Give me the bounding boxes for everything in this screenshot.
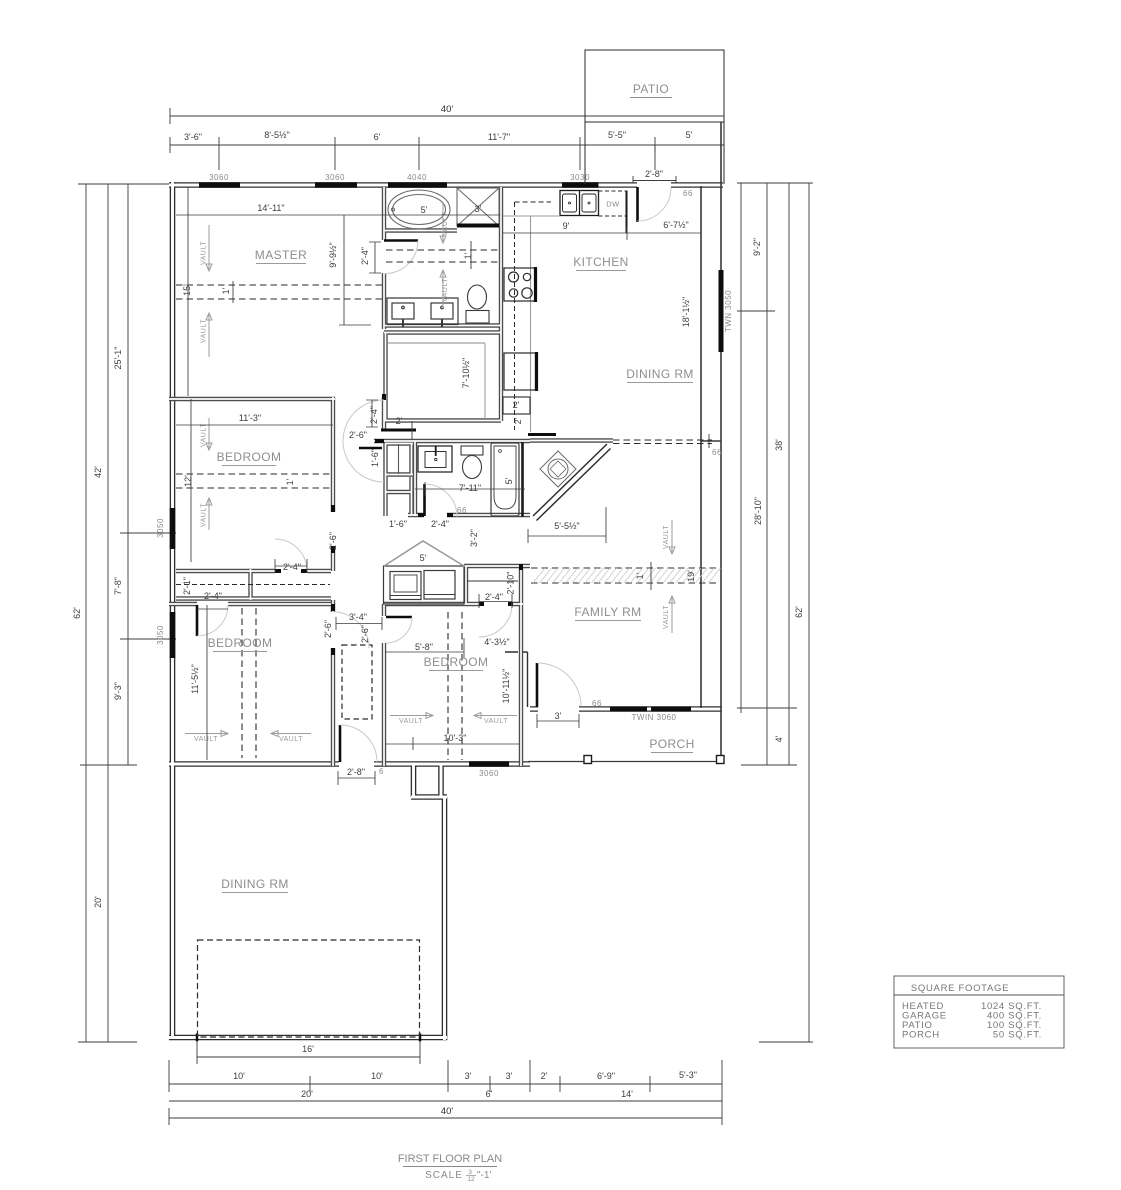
svg-text:3060: 3060: [209, 173, 229, 182]
svg-text:TWN 3050: TWN 3050: [724, 290, 733, 332]
svg-text:3': 3': [555, 711, 562, 721]
svg-text:VAULT: VAULT: [663, 605, 670, 629]
svg-text:1': 1': [463, 252, 473, 259]
svg-text:3': 3': [506, 1071, 513, 1081]
svg-text:2'-10": 2'-10": [506, 572, 516, 595]
svg-text:25'-1": 25'-1": [113, 347, 123, 370]
svg-text:9': 9': [563, 221, 570, 231]
svg-text:4': 4': [774, 735, 784, 742]
svg-text:5': 5': [420, 553, 427, 563]
svg-text:14': 14': [621, 1089, 633, 1099]
svg-text:5'-5": 5'-5": [608, 130, 626, 140]
svg-text:2'-6": 2'-6": [323, 620, 333, 638]
svg-text:VAULT: VAULT: [442, 278, 449, 302]
svg-text:11'-5½": 11'-5½": [190, 664, 200, 694]
svg-text:42': 42': [93, 466, 103, 478]
svg-text:1': 1': [285, 478, 295, 485]
svg-text:6'-7½": 6'-7½": [663, 220, 688, 230]
svg-text:16': 16': [302, 1044, 314, 1054]
svg-text:5': 5': [686, 130, 693, 140]
svg-text:18'-1½": 18'-1½": [681, 297, 691, 327]
svg-text:2'-4": 2'-4": [369, 406, 379, 424]
svg-text:BEDROOM: BEDROOM: [217, 450, 282, 464]
svg-text:6'-9": 6'-9": [597, 1071, 615, 1081]
svg-text:BEDROOM: BEDROOM: [424, 655, 489, 669]
svg-text:7'-11": 7'-11": [459, 483, 481, 493]
svg-text:2'-6": 2'-6": [349, 430, 367, 440]
svg-text:5'-5½": 5'-5½": [554, 521, 579, 531]
svg-text:62': 62': [72, 607, 82, 619]
svg-text:2': 2': [541, 1071, 548, 1081]
svg-text:4'-3½": 4'-3½": [484, 637, 509, 647]
svg-text:12: 12: [467, 1176, 475, 1183]
svg-text:9'-3": 9'-3": [113, 682, 123, 700]
svg-text:VAULT: VAULT: [201, 503, 208, 527]
svg-text:5'-8": 5'-8": [415, 642, 433, 652]
svg-text:62': 62': [794, 606, 804, 618]
svg-text:5'-3": 5'-3": [679, 1070, 697, 1080]
svg-text:VAULT: VAULT: [663, 525, 670, 549]
svg-text:6': 6': [374, 132, 381, 142]
svg-text:2'-6": 2'-6": [360, 625, 370, 643]
svg-text:KITCHEN: KITCHEN: [573, 255, 628, 269]
svg-text:66: 66: [712, 448, 722, 457]
svg-text:8'-5½": 8'-5½": [264, 130, 289, 140]
svg-text:7'-8": 7'-8": [113, 577, 123, 595]
svg-text:14'-11": 14'-11": [257, 203, 284, 213]
svg-text:15': 15': [182, 284, 192, 296]
svg-text:6: 6: [379, 767, 384, 776]
svg-text:VAULT: VAULT: [201, 423, 208, 447]
svg-text:3: 3: [468, 1169, 472, 1176]
svg-text:10': 10': [233, 1071, 245, 1081]
svg-text:2'-4": 2'-4": [431, 519, 449, 529]
svg-text:40': 40': [441, 104, 454, 115]
svg-text:MASTER: MASTER: [255, 248, 307, 262]
svg-text:20': 20': [301, 1089, 313, 1099]
svg-text:6': 6': [486, 1089, 493, 1099]
svg-text:VAULT: VAULT: [201, 241, 208, 265]
svg-text:1': 1': [221, 287, 231, 294]
svg-text:PORCH: PORCH: [649, 737, 694, 751]
svg-text:VAULT: VAULT: [201, 319, 208, 343]
svg-text:5': 5': [421, 205, 428, 215]
svg-text:DW: DW: [606, 200, 620, 209]
svg-text:3050: 3050: [156, 518, 165, 538]
svg-text:SCALE: SCALE: [425, 1170, 463, 1181]
svg-text:FAMILY RM: FAMILY RM: [574, 605, 641, 619]
svg-text:9'-9½": 9'-9½": [328, 242, 338, 267]
svg-text:FIRST FLOOR PLAN: FIRST FLOOR PLAN: [398, 1153, 502, 1165]
svg-text:PATIO: PATIO: [633, 82, 669, 96]
svg-text:BEDROOM: BEDROOM: [208, 636, 273, 650]
svg-text:2'-4": 2'-4": [360, 247, 370, 265]
svg-text:"-1': "-1': [477, 1170, 491, 1181]
svg-text:2': 2': [513, 400, 520, 410]
svg-text:38': 38': [774, 439, 784, 451]
svg-text:3060: 3060: [479, 769, 499, 778]
svg-text:66: 66: [683, 189, 693, 198]
svg-text:5': 5': [504, 477, 514, 484]
svg-text:4040: 4040: [407, 173, 427, 182]
svg-text:20': 20': [93, 896, 103, 908]
svg-text:3060: 3060: [325, 173, 345, 182]
svg-text:VAULT: VAULT: [279, 736, 303, 743]
svg-text:VAULT: VAULT: [194, 736, 218, 743]
svg-text:1'-6": 1'-6": [389, 519, 407, 529]
svg-text:3050: 3050: [156, 625, 165, 645]
svg-text:3'-4": 3'-4": [349, 612, 367, 622]
svg-text:3030: 3030: [570, 173, 590, 182]
svg-text:DINING RM: DINING RM: [221, 877, 289, 891]
svg-text:9'-2": 9'-2": [752, 238, 762, 256]
svg-text:2'-6": 2'-6": [328, 532, 338, 550]
svg-text:10'-3": 10'-3": [444, 733, 467, 743]
svg-text:1': 1': [635, 572, 645, 579]
svg-text:3'-6": 3'-6": [184, 132, 202, 142]
svg-text:2': 2': [513, 417, 523, 424]
svg-text:DINING RM: DINING RM: [626, 367, 694, 381]
svg-text:2'-4": 2'-4": [485, 592, 503, 602]
svg-text:2': 2': [396, 416, 403, 426]
svg-text:66: 66: [592, 699, 602, 708]
svg-text:10': 10': [371, 1071, 383, 1081]
svg-text:2'-8": 2'-8": [347, 767, 365, 777]
svg-text:3': 3': [465, 1071, 472, 1081]
svg-text:10'-11½": 10'-11½": [501, 669, 511, 704]
svg-text:28'-10": 28'-10": [753, 497, 763, 525]
svg-text:12': 12': [183, 475, 193, 487]
svg-text:50 SQ.FT.: 50 SQ.FT.: [993, 1030, 1042, 1041]
svg-text:11'-7": 11'-7": [488, 132, 510, 142]
svg-text:3': 3': [475, 204, 482, 214]
svg-text:2'-8": 2'-8": [645, 169, 663, 179]
svg-text:PORCH: PORCH: [902, 1030, 940, 1041]
svg-text:2'-1": 2'-1": [182, 577, 192, 595]
svg-text:11'-3": 11'-3": [239, 413, 261, 423]
svg-text:2'-4": 2'-4": [204, 591, 222, 601]
svg-text:19': 19': [686, 570, 696, 582]
svg-text:SQUARE FOOTAGE: SQUARE FOOTAGE: [911, 983, 1009, 994]
svg-text:2'-4": 2'-4": [283, 562, 301, 572]
svg-text:1'-6": 1'-6": [370, 449, 380, 467]
svg-text:VAULT: VAULT: [484, 718, 508, 725]
svg-text:40': 40': [441, 1106, 454, 1117]
svg-text:3'-2": 3'-2": [469, 529, 479, 547]
svg-text:7'-10½": 7'-10½": [461, 358, 471, 388]
svg-text:66: 66: [457, 506, 467, 515]
svg-text:TWIN 3060: TWIN 3060: [632, 713, 677, 722]
svg-text:VAULT: VAULT: [399, 718, 423, 725]
